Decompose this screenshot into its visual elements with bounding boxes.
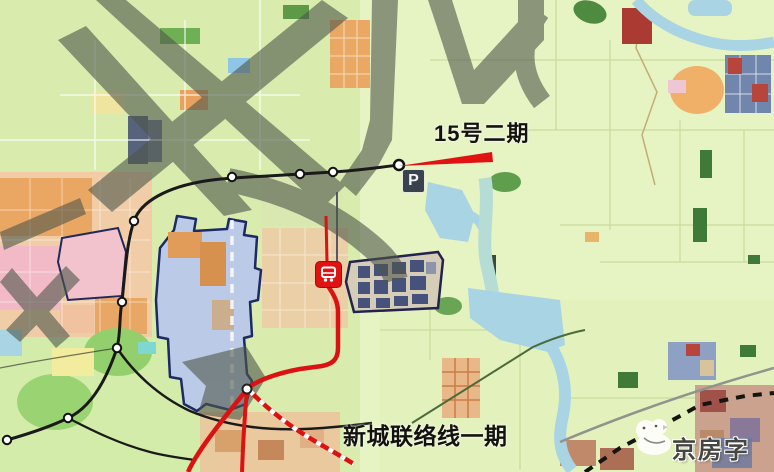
junction-station (243, 385, 252, 394)
map-canvas (0, 0, 774, 472)
line15-phase2-label: 15号二期 (434, 123, 529, 145)
jingfangzi-watermark: 京房字 (632, 414, 772, 466)
new-town-connector-label: 新城联络线一期 (343, 425, 508, 448)
parking-badge-letter: P (408, 172, 419, 190)
planning-map: 15号二期 新城联络线一期 P 京房字 (0, 0, 774, 472)
watermark-logo-text: 京房字 (672, 430, 750, 465)
train-glyph (320, 266, 337, 283)
train-station-icon (315, 261, 342, 288)
dove-icon (632, 414, 676, 458)
parking-icon: P (403, 170, 424, 192)
